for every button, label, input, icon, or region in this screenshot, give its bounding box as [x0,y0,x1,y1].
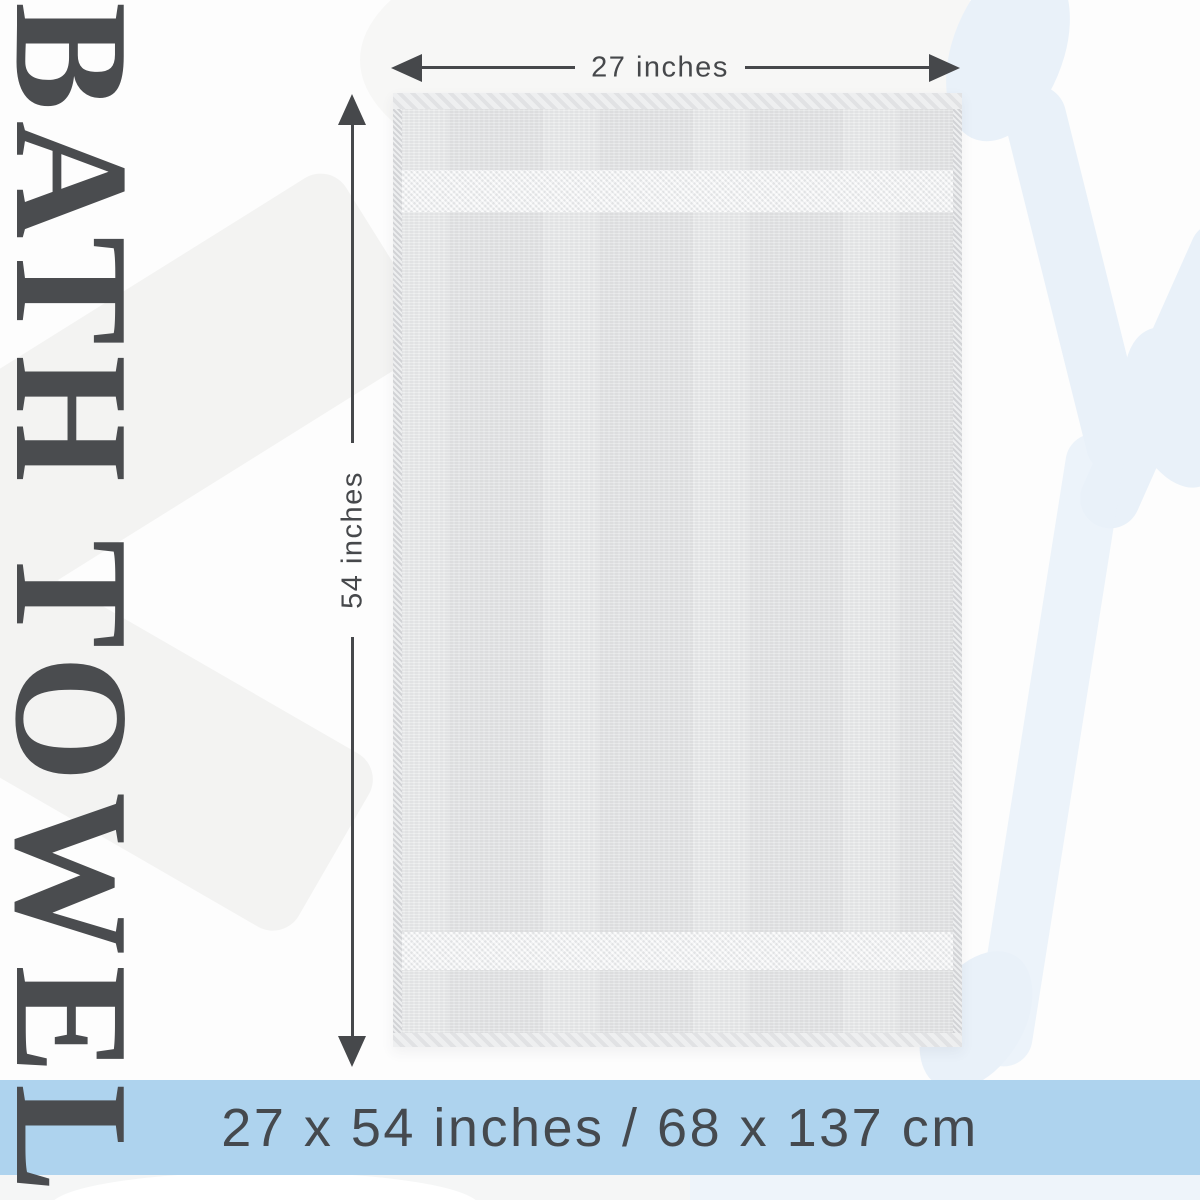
size-banner-label: 27 x 54 inches / 68 x 137 cm [221,1097,978,1159]
size-banner: 27 x 54 inches / 68 x 137 cm [0,1080,1200,1175]
decorative-leaf-shape [1101,313,1200,502]
decorative-branch-shape [970,429,1127,1070]
arrowhead-down-icon [338,1036,366,1067]
towel-bottom-hem [393,1033,962,1047]
towel-left-selvage [393,93,402,1047]
towel-top-hem [393,93,962,109]
height-dimension-label: 54 inches [337,471,370,609]
width-dimension-line [420,66,575,69]
decorative-branch-shape [998,78,1155,481]
arrowhead-up-icon [338,94,366,125]
height-dimension-line [351,122,354,443]
width-dimension-label: 27 inches [591,52,729,85]
product-dimension-image: 27 inches 54 inches 27 x 54 inches / 68 … [0,0,1200,1200]
towel-top-border-band [402,170,953,212]
width-dimension-line [745,66,935,69]
towel-bottom-border-band [402,932,953,970]
arrowhead-left-icon [391,54,422,82]
towel-image [393,93,962,1047]
height-dimension-line [351,637,354,1038]
decorative-branch-shape [1070,212,1200,538]
product-title-vertical: BATH TOWEL [0,2,152,1200]
decorative-footer-shape [690,1175,1200,1200]
arrowhead-right-icon [929,54,960,82]
towel-right-selvage [953,93,962,1047]
